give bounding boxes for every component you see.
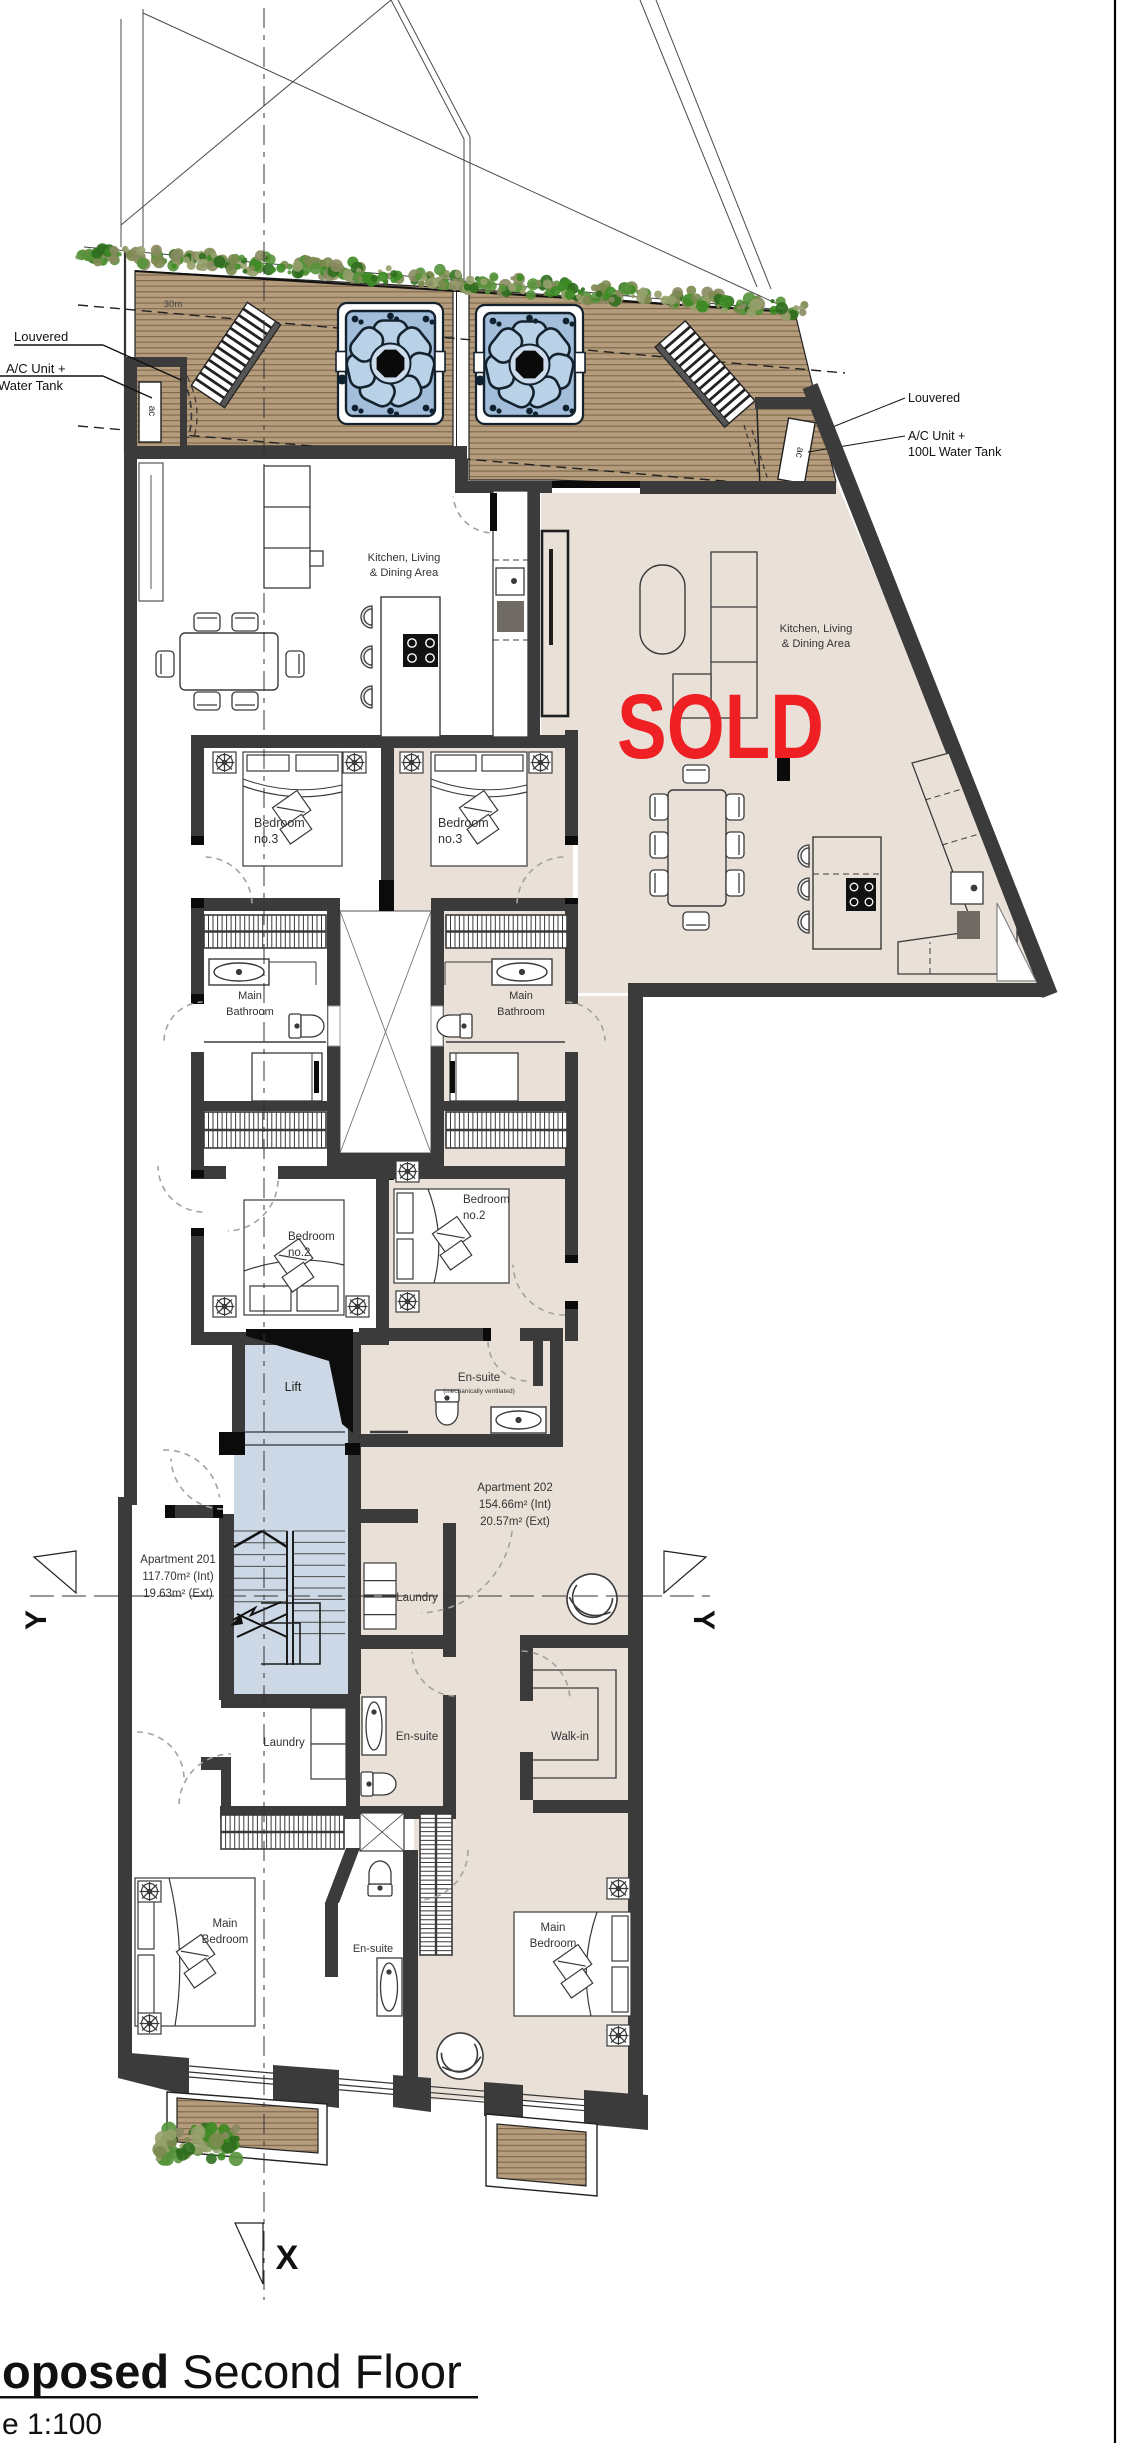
svg-text:ac: ac xyxy=(793,446,806,458)
svg-text:Main: Main xyxy=(238,990,262,1002)
svg-text:Apartment 201: Apartment 201 xyxy=(140,1554,215,1566)
svg-text:no.2: no.2 xyxy=(463,1210,485,1222)
svg-text:ac: ac xyxy=(146,406,157,417)
svg-text:Bathroom: Bathroom xyxy=(226,1006,274,1018)
svg-text:Bathroom: Bathroom xyxy=(497,1006,545,1018)
svg-text:& Dining Area: & Dining Area xyxy=(370,567,439,579)
svg-text:Bedroom: Bedroom xyxy=(202,1934,249,1946)
svg-text:oposed Second Floor: oposed Second Floor xyxy=(2,2345,462,2398)
svg-text:Kitchen, Living: Kitchen, Living xyxy=(780,623,853,635)
svg-text:Kitchen, Living: Kitchen, Living xyxy=(368,552,441,564)
svg-text:Apartment 202: Apartment 202 xyxy=(477,1482,552,1494)
svg-text:no.3: no.3 xyxy=(438,832,462,846)
svg-text:Y: Y xyxy=(687,1610,720,1630)
svg-text:30m: 30m xyxy=(164,299,183,310)
svg-text:154.66m² (Int): 154.66m² (Int) xyxy=(479,1499,551,1511)
svg-text:100L Water Tank: 100L Water Tank xyxy=(908,445,1002,459)
svg-text:Bedroom: Bedroom xyxy=(530,1938,577,1950)
svg-text:En-suite: En-suite xyxy=(353,1943,393,1955)
svg-text:Louvered: Louvered xyxy=(908,391,960,405)
svg-text:no.3: no.3 xyxy=(254,832,278,846)
svg-text:Y: Y xyxy=(20,1610,53,1630)
svg-text:& Dining Area: & Dining Area xyxy=(782,638,851,650)
svg-text:Bedroom: Bedroom xyxy=(463,1194,510,1206)
svg-text:(mechanically ventilated): (mechanically ventilated) xyxy=(443,1388,515,1395)
svg-text:Bedroom: Bedroom xyxy=(288,1231,335,1243)
svg-text:20.57m² (Ext): 20.57m² (Ext) xyxy=(480,1516,550,1528)
svg-text:Bedroom: Bedroom xyxy=(438,816,489,830)
svg-text:Main: Main xyxy=(509,990,533,1002)
svg-text:Louvered: Louvered xyxy=(14,329,68,344)
svg-text:En-suite: En-suite xyxy=(396,1731,438,1743)
svg-text:X: X xyxy=(276,2239,299,2277)
svg-text:A/C Unit +: A/C Unit + xyxy=(6,361,66,376)
svg-text:SOLD: SOLD xyxy=(617,676,824,778)
svg-text:117.70m² (Int): 117.70m² (Int) xyxy=(142,1571,214,1583)
svg-text:Bedroom: Bedroom xyxy=(254,816,305,830)
svg-text:no.2: no.2 xyxy=(288,1247,310,1259)
svg-text:19.63m² (Ext): 19.63m² (Ext) xyxy=(143,1588,213,1600)
svg-text:Water Tank: Water Tank xyxy=(0,378,64,393)
svg-text:Laundry: Laundry xyxy=(263,1737,305,1749)
svg-text:Main: Main xyxy=(541,1922,566,1934)
svg-text:Lift: Lift xyxy=(285,1380,302,1394)
svg-text:e 1:100: e 1:100 xyxy=(2,2408,102,2441)
svg-text:Walk-in: Walk-in xyxy=(551,1731,589,1743)
svg-text:Main: Main xyxy=(213,1918,238,1930)
svg-text:A/C Unit +: A/C Unit + xyxy=(908,429,965,443)
svg-text:En-suite: En-suite xyxy=(458,1372,500,1384)
svg-text:Laundry: Laundry xyxy=(396,1592,438,1604)
